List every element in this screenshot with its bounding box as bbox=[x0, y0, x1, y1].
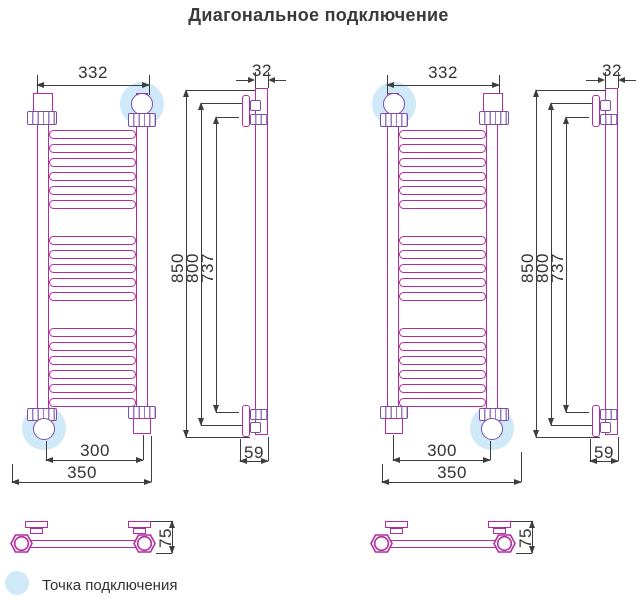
rung bbox=[49, 328, 136, 337]
dim-line bbox=[393, 460, 490, 461]
rung-ladder bbox=[399, 130, 486, 407]
drawing-left: 332 300 350 850 800 bbox=[8, 60, 272, 505]
rung bbox=[49, 172, 136, 181]
ext-line bbox=[536, 90, 605, 91]
ext-line bbox=[566, 117, 589, 118]
dim-mount-span-label: 737 bbox=[550, 248, 566, 288]
valve-knob bbox=[600, 100, 611, 111]
rung bbox=[399, 200, 486, 209]
rung bbox=[49, 236, 136, 245]
dim-line bbox=[12, 482, 151, 483]
rung bbox=[49, 292, 136, 301]
rung bbox=[399, 398, 486, 407]
dim-mount-span-label: 737 bbox=[200, 248, 216, 288]
union-nut bbox=[128, 113, 156, 127]
union-nut bbox=[250, 114, 268, 125]
arrowhead bbox=[598, 77, 605, 83]
union-nut bbox=[600, 409, 618, 420]
rung-group bbox=[399, 130, 486, 209]
union-nut bbox=[479, 111, 509, 125]
hex-fitting bbox=[370, 534, 393, 553]
technical-drawing-page: Диагональное подключение 332 300 350 bbox=[0, 0, 637, 600]
rung-group bbox=[49, 236, 136, 301]
wall-bracket bbox=[592, 95, 600, 127]
ext-line bbox=[201, 103, 242, 104]
tube-plug bbox=[133, 418, 151, 434]
connection-point-legend-icon bbox=[5, 571, 29, 595]
wall-bracket-bar bbox=[25, 521, 48, 528]
rung bbox=[399, 186, 486, 195]
ext-line bbox=[151, 436, 152, 482]
rung bbox=[399, 384, 486, 393]
arrowhead bbox=[618, 77, 625, 83]
dim-line bbox=[37, 85, 149, 86]
rung bbox=[399, 278, 486, 287]
drawing-right: 332 300 350 850 800 bbox=[358, 60, 622, 505]
rung bbox=[399, 342, 486, 351]
wall-bracket-bar bbox=[385, 521, 408, 528]
rung bbox=[49, 250, 136, 259]
plan-view-right: 75 bbox=[368, 503, 548, 565]
connection-point-legend-label: Точка подключения bbox=[42, 577, 177, 594]
vertical-tube bbox=[136, 93, 148, 410]
rung bbox=[49, 200, 136, 209]
rung-group bbox=[49, 130, 136, 209]
ext-line bbox=[186, 437, 250, 438]
vertical-tube bbox=[486, 93, 498, 410]
ext-line bbox=[201, 425, 242, 426]
dim-wall-depth-label: 75 bbox=[518, 518, 534, 558]
dim-tail bbox=[274, 80, 286, 81]
rung bbox=[49, 278, 136, 287]
hex-fitting bbox=[10, 534, 33, 553]
dim-bottom-offset-label: 59 bbox=[234, 444, 274, 461]
rung bbox=[49, 370, 136, 379]
vertical-tube bbox=[387, 93, 399, 410]
dim-bottom-offset-label: 59 bbox=[584, 444, 624, 461]
vertical-tube bbox=[37, 93, 49, 410]
wall-bracket-bar bbox=[128, 521, 151, 528]
rung bbox=[399, 158, 486, 167]
rung bbox=[399, 328, 486, 337]
dim-wall-depth-label: 75 bbox=[158, 518, 174, 558]
rung bbox=[49, 144, 136, 153]
ext-line bbox=[551, 103, 592, 104]
hex-fitting bbox=[133, 534, 156, 553]
ext-line bbox=[186, 90, 255, 91]
ext-line bbox=[521, 452, 522, 482]
connection-cap bbox=[481, 418, 503, 440]
rung bbox=[399, 356, 486, 365]
rung-group bbox=[49, 328, 136, 407]
ext-line bbox=[566, 412, 589, 413]
rung bbox=[49, 186, 136, 195]
dim-line bbox=[46, 460, 143, 461]
ext-line bbox=[216, 412, 239, 413]
wall-bracket bbox=[592, 405, 600, 437]
rung bbox=[49, 158, 136, 167]
rung bbox=[49, 264, 136, 273]
dim-tail bbox=[236, 80, 248, 81]
union-nut bbox=[600, 114, 618, 125]
wall-bracket-bar bbox=[488, 521, 511, 528]
wall-bracket bbox=[242, 95, 250, 127]
rung-ladder bbox=[49, 130, 136, 407]
connection-cap bbox=[131, 93, 153, 115]
tube-plug bbox=[483, 93, 503, 112]
dim-connection-spacing-label: 300 bbox=[412, 442, 472, 459]
rung bbox=[49, 130, 136, 139]
rung-group bbox=[399, 236, 486, 301]
rung bbox=[49, 398, 136, 407]
dim-line bbox=[382, 482, 521, 483]
dim-total-width-label: 350 bbox=[422, 464, 482, 481]
side-tube bbox=[255, 88, 268, 435]
rung bbox=[399, 370, 486, 379]
union-nut bbox=[27, 111, 57, 125]
arrowhead bbox=[268, 77, 275, 83]
dim-top-width-label: 332 bbox=[63, 64, 123, 81]
rung-group bbox=[399, 328, 486, 407]
dim-line bbox=[387, 85, 499, 86]
dim-tail bbox=[624, 80, 636, 81]
dim-top-width-label: 332 bbox=[413, 64, 473, 81]
ext-line bbox=[605, 72, 606, 88]
ext-line bbox=[551, 425, 592, 426]
rung bbox=[399, 172, 486, 181]
connection-cap bbox=[383, 93, 405, 115]
rung bbox=[399, 236, 486, 245]
arrowhead bbox=[248, 77, 255, 83]
ext-line bbox=[536, 437, 600, 438]
connection-cap bbox=[33, 418, 55, 440]
rung bbox=[399, 250, 486, 259]
hex-fitting bbox=[493, 534, 516, 553]
ext-line bbox=[216, 117, 239, 118]
rung bbox=[399, 292, 486, 301]
dim-connection-spacing-label: 300 bbox=[65, 442, 125, 459]
rung bbox=[49, 384, 136, 393]
page-title: Диагональное подключение bbox=[0, 5, 637, 26]
valve-knob bbox=[600, 422, 611, 433]
rung bbox=[49, 356, 136, 365]
valve-knob bbox=[250, 100, 261, 111]
dim-tail bbox=[586, 80, 598, 81]
rung bbox=[49, 342, 136, 351]
dim-total-width-label: 350 bbox=[52, 464, 112, 481]
wall-bracket bbox=[242, 405, 250, 437]
valve-knob bbox=[250, 422, 261, 433]
side-tube bbox=[605, 88, 618, 435]
rung bbox=[399, 144, 486, 153]
tube-plug bbox=[385, 418, 403, 434]
plan-view-left: 75 bbox=[8, 503, 188, 565]
union-nut bbox=[380, 113, 408, 127]
rung bbox=[399, 130, 486, 139]
ext-line bbox=[255, 72, 256, 88]
tube-plug bbox=[33, 93, 53, 112]
union-nut bbox=[250, 409, 268, 420]
rung bbox=[399, 264, 486, 273]
